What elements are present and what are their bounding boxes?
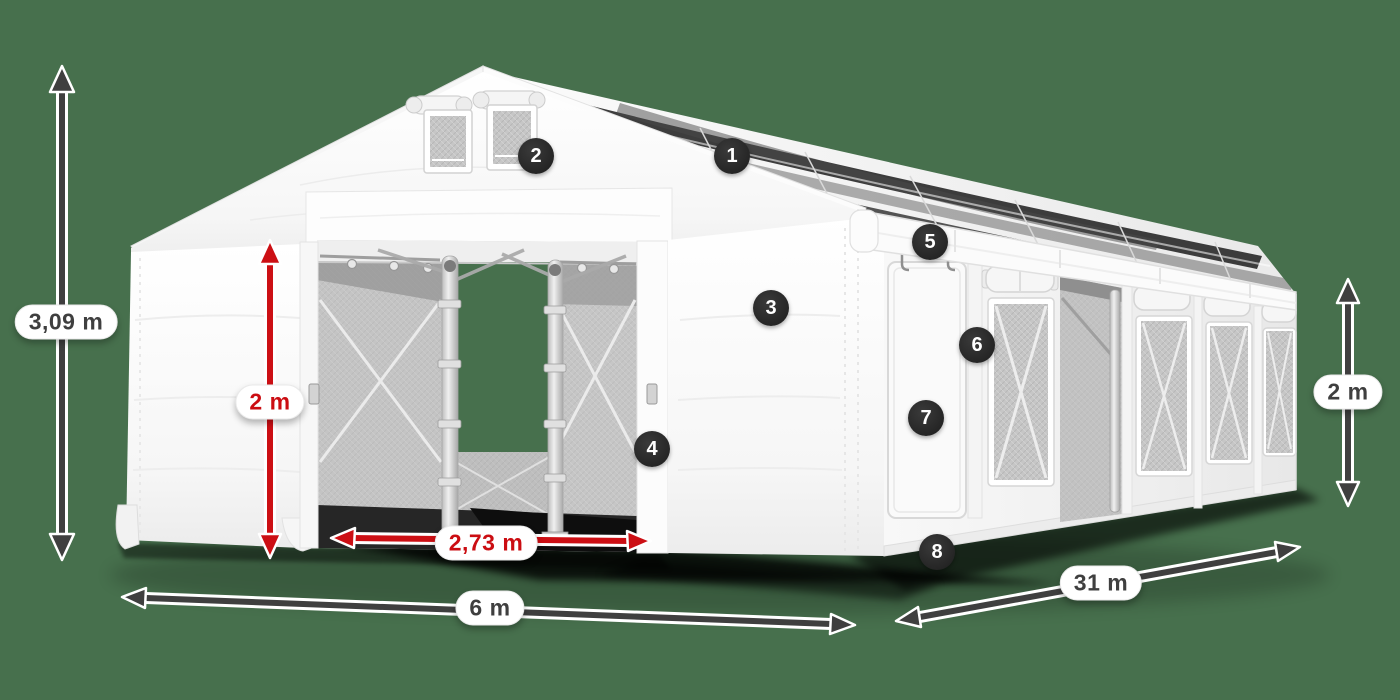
total-height-label: 3,09 m: [15, 305, 118, 340]
wall-height-label: 2 m: [1313, 375, 1382, 410]
tent-dimensions-figure: 3,09 m 2 m 2,73 m 6 m 31 m 2 m 1 2 3 4 5…: [0, 0, 1400, 700]
marker-6-badge[interactable]: 6: [959, 327, 995, 363]
marker-7-badge[interactable]: 7: [908, 400, 944, 436]
doorway-interior: [317, 240, 637, 552]
door-handle-left: [309, 384, 319, 404]
marker-8-badge[interactable]: 8: [919, 534, 955, 570]
side-window-bay-1: [982, 266, 1058, 486]
marker-2-badge[interactable]: 2: [518, 138, 554, 174]
door-handle-right: [647, 384, 657, 404]
front-door-leaf-right: [637, 241, 668, 553]
tent-illustration: [0, 0, 1400, 700]
side-door-panel: [888, 250, 966, 518]
marker-5-badge[interactable]: 5: [912, 224, 948, 260]
side-length-label: 31 m: [1060, 566, 1142, 601]
marker-3-badge[interactable]: 3: [753, 290, 789, 326]
front-width-label: 6 m: [455, 591, 524, 626]
tent: [116, 66, 1300, 556]
marker-1-badge[interactable]: 1: [714, 138, 750, 174]
front-right-wall: [668, 216, 884, 556]
side-open-bay: [1060, 276, 1122, 522]
door-width-label: 2,73 m: [435, 526, 538, 561]
marker-4-badge[interactable]: 4: [634, 431, 670, 467]
door-height-label: 2 m: [235, 385, 304, 420]
